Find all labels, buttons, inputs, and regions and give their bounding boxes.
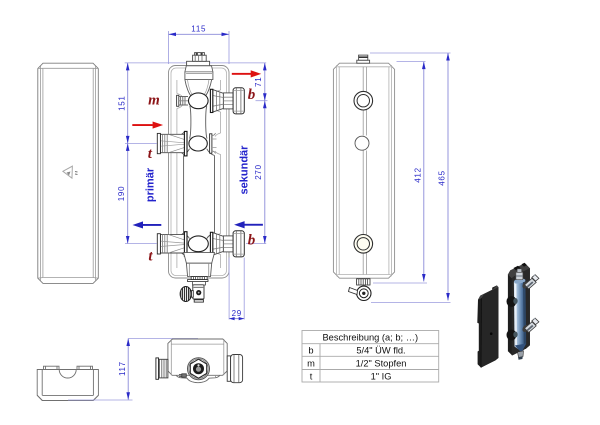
svg-text:412: 412: [413, 167, 422, 182]
svg-text:5/4" ÜW fld.: 5/4" ÜW fld.: [356, 346, 405, 356]
svg-text:sekundär: sekundär: [239, 145, 251, 195]
svg-text:71: 71: [254, 77, 263, 87]
svg-text:m: m: [307, 358, 315, 368]
svg-text:b: b: [248, 87, 256, 103]
svg-text:465: 465: [438, 170, 447, 185]
svg-text:b: b: [248, 233, 256, 249]
svg-text:190: 190: [117, 186, 126, 201]
svg-text:1/2" Stopfen: 1/2" Stopfen: [356, 358, 407, 368]
svg-text:29: 29: [232, 309, 242, 318]
svg-text:Beschreibung (a; b; …): Beschreibung (a; b; …): [322, 333, 418, 343]
svg-text:m: m: [148, 93, 160, 109]
svg-text:b: b: [308, 346, 313, 356]
svg-text:primär: primär: [145, 167, 157, 202]
svg-text:t: t: [310, 371, 313, 381]
svg-text:270: 270: [254, 164, 263, 179]
svg-text:117: 117: [118, 361, 127, 376]
svg-text:151: 151: [117, 95, 126, 110]
svg-text:1" IG: 1" IG: [371, 371, 392, 381]
svg-text:115: 115: [191, 25, 206, 34]
